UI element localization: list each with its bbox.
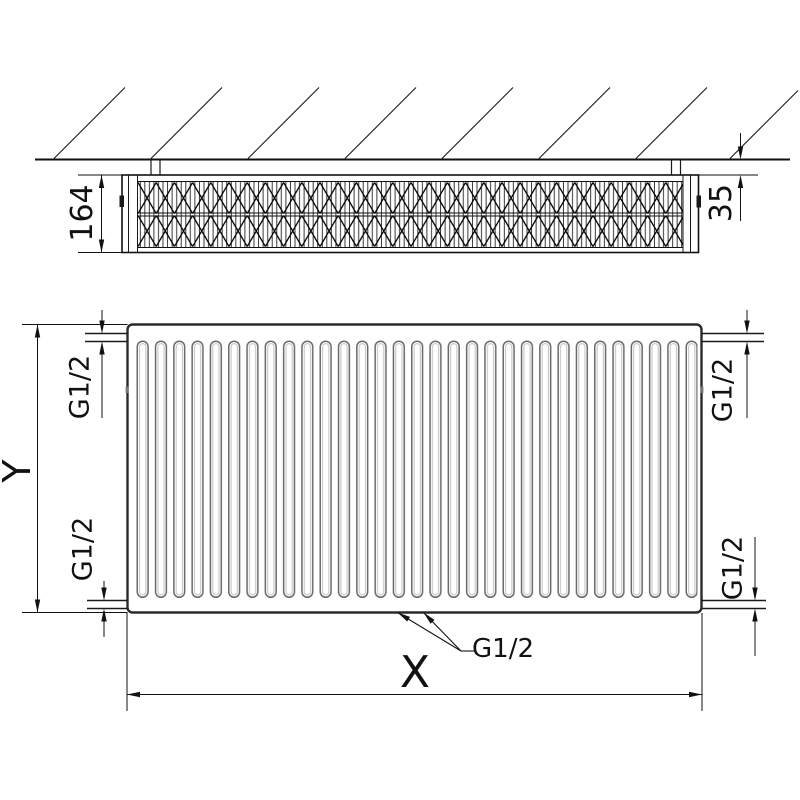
- dimension-g12-bottom-right: [752, 537, 757, 656]
- arrow-down-icon: [101, 588, 106, 601]
- pipe-stub-bottom-right: [702, 601, 767, 609]
- convector-fins: [138, 182, 683, 248]
- wall-hatching: [54, 88, 798, 159]
- arrow-up-icon: [752, 609, 757, 622]
- arrow-down-icon: [738, 147, 743, 160]
- mounting-bracket-right: [672, 160, 681, 176]
- pipe-stub-bottom-left: [87, 601, 128, 609]
- radiator-top-view: [120, 175, 702, 253]
- dimension-g12-top-right: [744, 310, 749, 418]
- connection-bottom-center-label: G1/2: [472, 636, 534, 662]
- connection-top-right-label: G1/2: [710, 358, 737, 422]
- depth-dimension-label: 164: [68, 184, 98, 241]
- arrow-right-icon: [689, 692, 702, 697]
- width-dimension-label: X: [400, 651, 430, 695]
- arrow-left-icon: [127, 692, 140, 697]
- pipe-stub-top-left: [85, 334, 128, 342]
- arrow-down-icon: [752, 588, 757, 601]
- dimension-g12-top-left: [99, 310, 104, 418]
- arrow-down-icon: [99, 321, 104, 334]
- connection-bottom-left-label: G1/2: [70, 517, 97, 581]
- radiator-front-view: [85, 325, 766, 613]
- side-connection-right: [697, 196, 702, 208]
- arrow-up-icon: [101, 609, 106, 622]
- leader-bottom-connections: [398, 613, 475, 652]
- side-connection-left: [120, 196, 125, 208]
- air-vent-right: [700, 387, 703, 394]
- arrow-up-left-icon: [398, 613, 411, 622]
- front-panel-slots: [137, 341, 698, 599]
- arrow-down-icon: [35, 600, 40, 613]
- wall-section: [35, 88, 798, 176]
- height-dimension-label: Y: [0, 459, 36, 482]
- mounting-bracket-left: [151, 160, 160, 176]
- arrow-up-icon: [99, 342, 104, 355]
- arrow-up-icon: [35, 325, 40, 338]
- arrow-up-icon: [744, 342, 749, 355]
- air-vent-left: [126, 387, 129, 394]
- connection-bottom-right-label: G1/2: [720, 536, 747, 600]
- radiator-technical-drawing: 164 35 Y X G1/2 G1/2 G1/2 G1/2 G1/2: [0, 0, 800, 800]
- wall-gap-dimension-label: 35: [707, 184, 737, 222]
- arrow-down-icon: [744, 321, 749, 334]
- pipe-stub-top-right: [702, 334, 765, 342]
- connection-top-left-label: G1/2: [67, 355, 94, 419]
